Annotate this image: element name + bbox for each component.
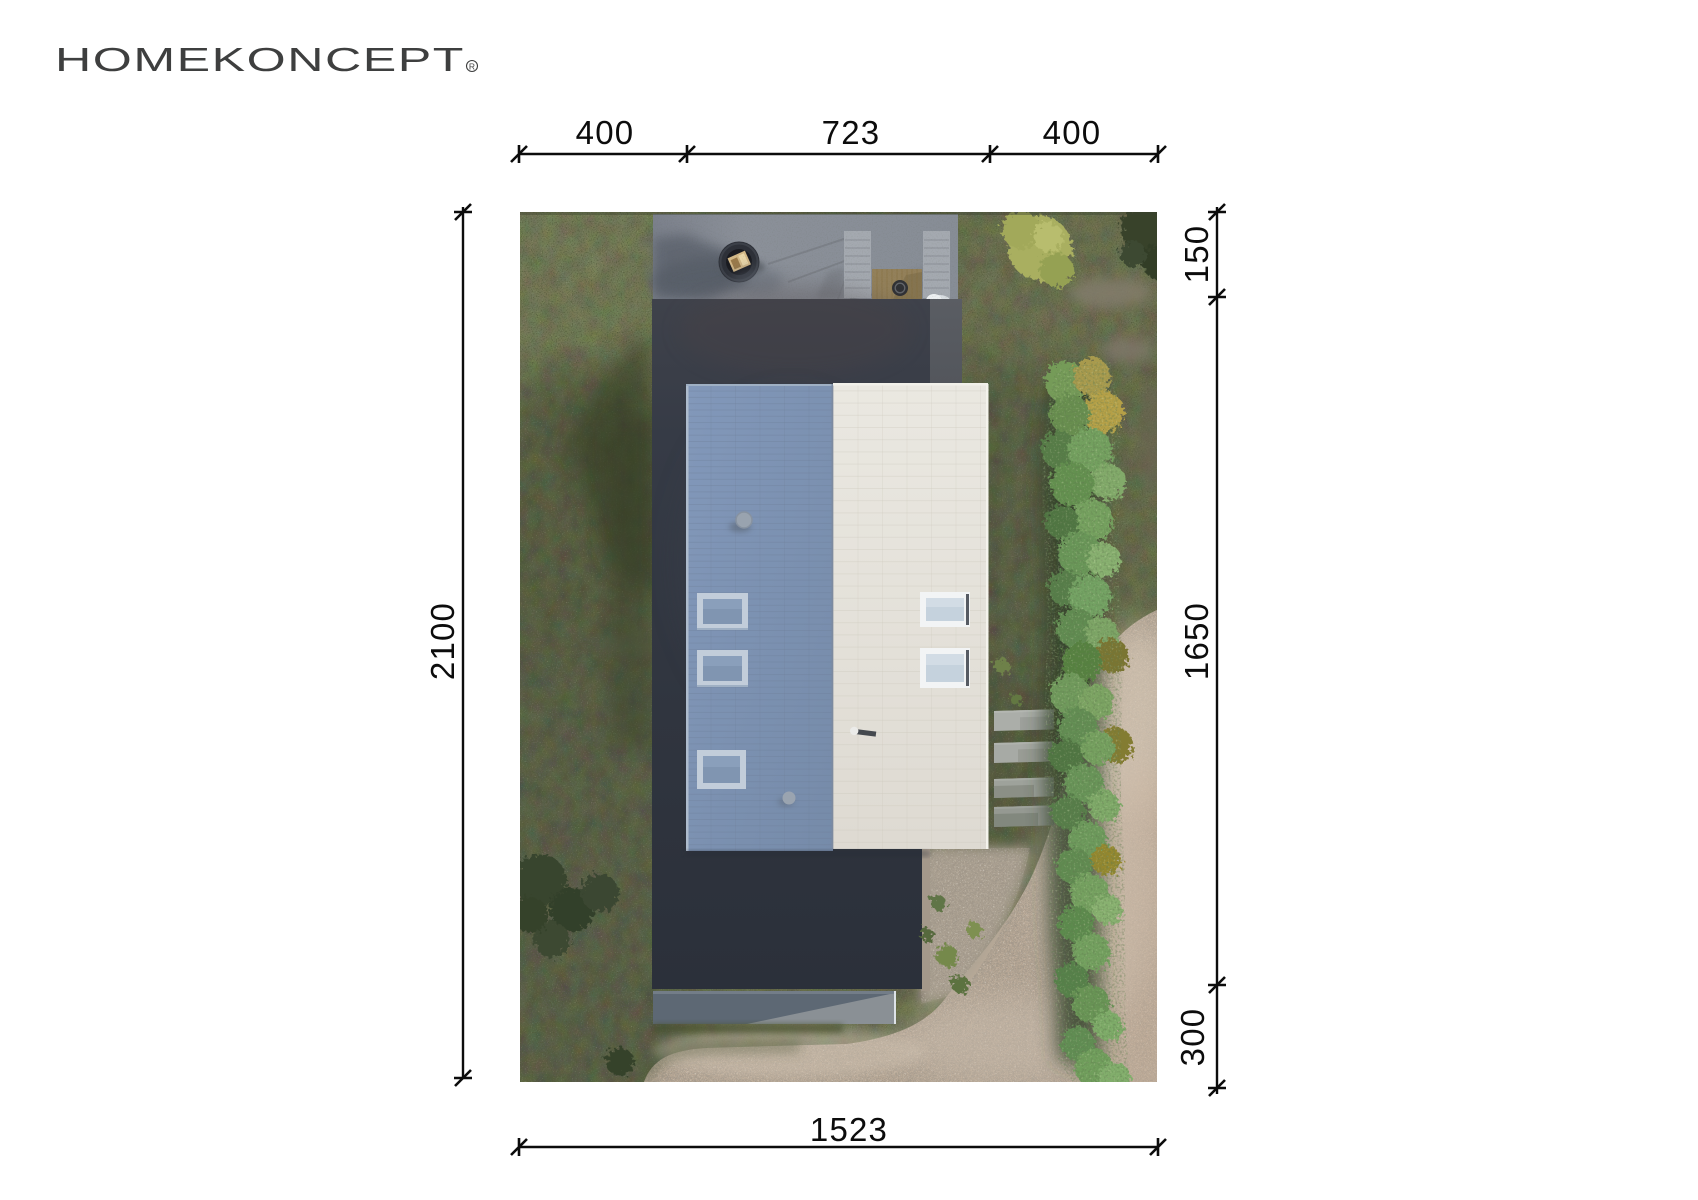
svg-text:1523: 1523 [810, 1111, 888, 1148]
svg-text:R: R [469, 61, 475, 71]
svg-text:1650: 1650 [1178, 602, 1215, 680]
svg-text:300: 300 [1174, 1008, 1211, 1067]
svg-text:150: 150 [1178, 225, 1215, 284]
svg-text:HOMEKONCEPT: HOMEKONCEPT [55, 41, 465, 78]
svg-text:400: 400 [576, 114, 635, 151]
svg-text:723: 723 [822, 114, 881, 151]
svg-text:2100: 2100 [424, 602, 461, 680]
svg-text:400: 400 [1043, 114, 1102, 151]
